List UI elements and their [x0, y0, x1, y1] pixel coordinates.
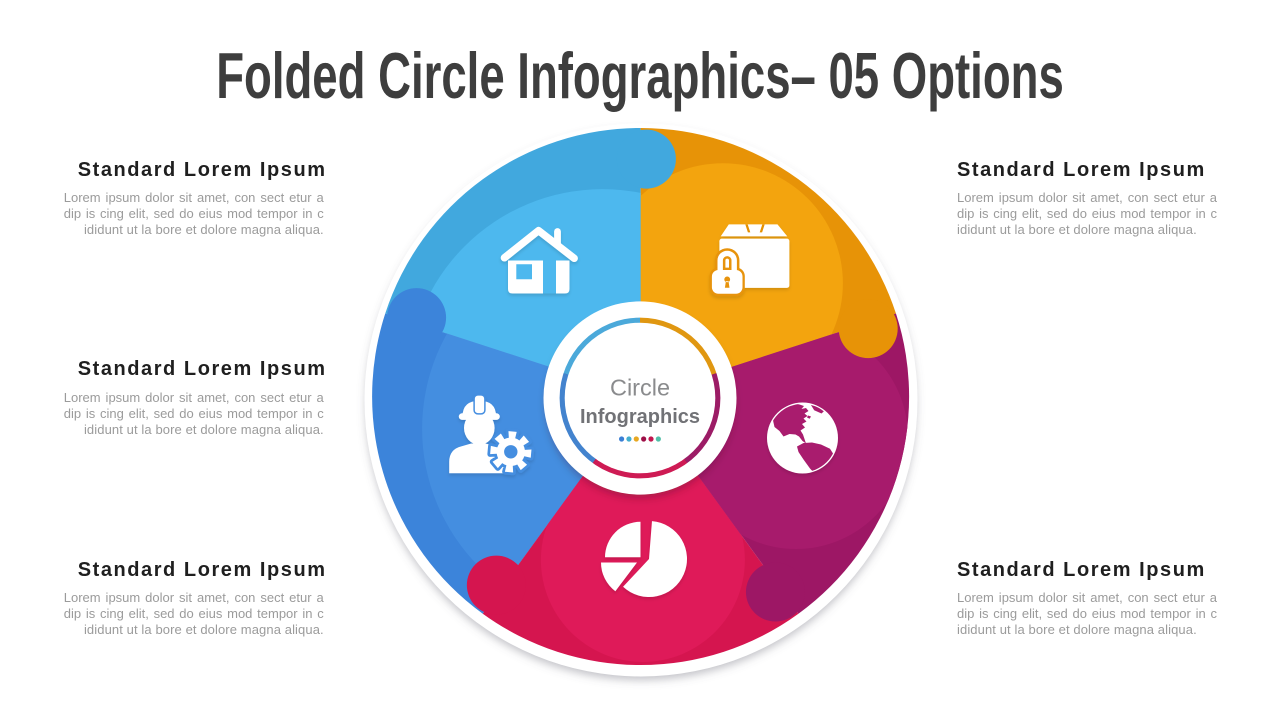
svg-text:Infographics: Infographics [580, 406, 700, 428]
svg-text:Circle: Circle [610, 374, 670, 400]
